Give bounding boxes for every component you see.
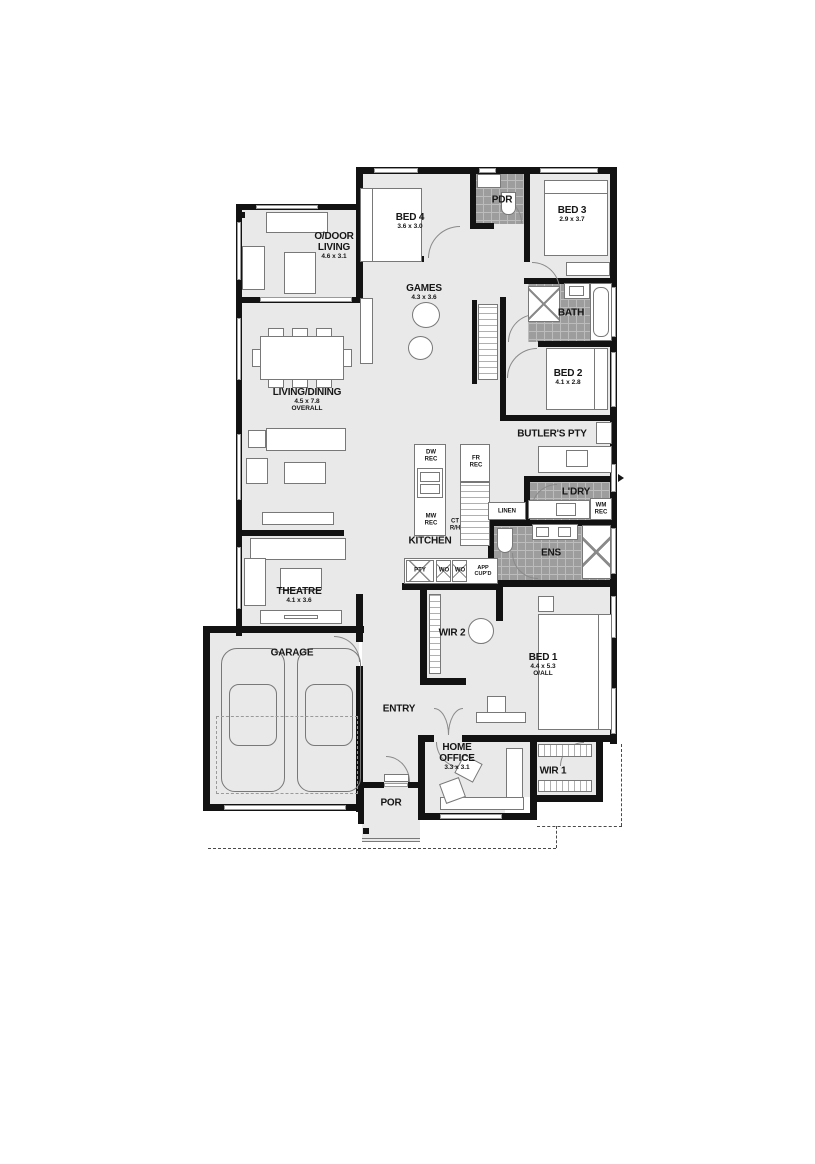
odoor-chair — [242, 246, 265, 290]
theatre-sofa-back — [250, 538, 346, 560]
butlers-name: BUTLER'S PTY — [517, 428, 586, 439]
living-window-2 — [237, 434, 241, 500]
theatre-name: THEATRE — [276, 586, 321, 597]
dining-chair — [316, 328, 332, 337]
dining-table — [260, 336, 344, 380]
bed3-pillow — [544, 180, 608, 194]
odoor-name-1: O/DOOR — [314, 231, 353, 242]
theatre-sofa-left — [244, 558, 266, 606]
bed4-name: BED 4 — [396, 212, 424, 223]
wir1-shelving-bottom — [538, 780, 592, 792]
wall-pdr-left — [470, 167, 476, 229]
pdr-label: PDR — [492, 194, 513, 205]
floor-plan-page: O/DOOR LIVING 4.6 x 3.1 BED 4 3.6 x 3.0 … — [0, 0, 815, 1164]
porch-edge — [362, 838, 420, 842]
wall-kitchen-bottom — [402, 583, 503, 590]
bed2-pillow — [594, 348, 608, 410]
wir1-name: WIR 1 — [540, 765, 567, 776]
wall-porch-left — [358, 782, 364, 824]
theatre-window — [237, 547, 241, 609]
fr-l1: FR — [470, 455, 483, 462]
bed1-side-table — [538, 596, 554, 612]
odoor-name-2: LIVING — [314, 242, 353, 253]
games-cabinet — [360, 298, 373, 364]
wall-porch-front-b — [408, 782, 418, 788]
wall-bed2-bottom — [500, 415, 617, 421]
ens-shower — [582, 525, 611, 579]
wall-ldry-top — [524, 476, 617, 482]
ens-label: ENS — [541, 547, 561, 558]
hall-robe — [478, 304, 498, 380]
fr-rec-label: FR REC — [470, 455, 483, 468]
wir1-label: WIR 1 — [540, 765, 567, 776]
ldry-name: L'DRY — [562, 486, 590, 497]
app-l2: CUP'D — [475, 571, 492, 577]
office-name-2: OFFICE — [439, 753, 474, 764]
bed4-window — [374, 168, 418, 173]
living-name: LIVING/DINING — [273, 387, 342, 398]
office-dims: 3.3 x 3.1 — [439, 765, 474, 772]
odoor-sofa — [266, 212, 328, 233]
wall-office-top-b — [462, 735, 530, 742]
entry-mirror — [487, 696, 506, 713]
butlers-sink — [566, 450, 588, 467]
living-label: LIVING/DINING 4.5 x 7.8 OVERALL — [273, 387, 342, 413]
garage-setback-dashed — [216, 716, 358, 794]
bath-tub-inner — [593, 287, 609, 337]
dining-chair — [292, 328, 308, 337]
bed4-dims: 3.6 x 3.0 — [396, 223, 424, 230]
bath-name: BATH — [558, 307, 584, 318]
kitchen-name: KITCHEN — [408, 535, 451, 546]
wall-wir1-right — [596, 742, 603, 802]
wall-bed1-bottom — [530, 735, 617, 742]
ldry-exit-arrow-icon — [618, 474, 624, 482]
boundary-connector — [556, 826, 557, 848]
living-console — [262, 512, 334, 525]
bed3-name: BED 3 — [558, 205, 586, 216]
bed1-label: BED 1 4.4 x 5.3 O/ALL — [529, 652, 557, 678]
ens-toilet — [497, 528, 513, 553]
living-dims-overall: OVERALL — [273, 406, 342, 413]
wall-theatre-top — [236, 530, 344, 536]
linen-name: LINEN — [498, 509, 516, 516]
dw-l1: DW — [425, 449, 438, 456]
living-coffee-table — [284, 462, 326, 484]
odoor-table — [284, 252, 316, 294]
odoor-dims: 4.6 x 3.1 — [314, 254, 353, 261]
mw-l2: REC — [425, 520, 438, 527]
floor-plan: O/DOOR LIVING 4.6 x 3.1 BED 4 3.6 x 3.0 … — [0, 0, 815, 1164]
floor-porch — [362, 786, 420, 842]
wo2-label: WO — [455, 568, 465, 575]
pdr-vanity — [477, 174, 501, 188]
bed1-pillow — [598, 614, 612, 730]
ens-name: ENS — [541, 547, 561, 558]
wall-hall-robe — [472, 300, 477, 384]
bed3-label: BED 3 2.9 x 3.7 — [558, 205, 586, 223]
wall-wir2-bottom — [420, 678, 466, 685]
boundary-right-bottom — [537, 826, 622, 827]
bath-basin — [569, 286, 584, 296]
games-label: GAMES 4.3 x 3.6 — [406, 283, 442, 301]
theatre-label: THEATRE 4.1 x 3.6 — [276, 586, 321, 604]
wo1-label: WO — [439, 568, 449, 575]
ens-basin — [558, 527, 571, 537]
pdr-name: PDR — [492, 194, 513, 205]
wall-porch-front-a — [362, 782, 384, 788]
garage-name: GARAGE — [271, 647, 314, 658]
ct-l2: R/H — [450, 525, 460, 532]
entry-name: ENTRY — [383, 703, 416, 714]
wall-hall-vertical — [500, 297, 506, 421]
living-armchair — [246, 458, 268, 484]
ct-rh-label: CT R/H — [450, 518, 460, 531]
wir2-name: WIR 2 — [439, 627, 466, 638]
wall-wir2-left — [420, 590, 427, 685]
wall-ens-bottom — [488, 580, 617, 587]
pdr-window — [479, 168, 496, 173]
dining-chair — [268, 328, 284, 337]
bed1-dims: 4.4 x 5.3 — [529, 663, 557, 670]
wir2-ottoman — [468, 618, 494, 644]
games-chair-1 — [412, 302, 440, 328]
wall-bath-bottom — [538, 341, 617, 347]
theatre-tv — [284, 615, 318, 619]
games-dims: 4.3 x 3.6 — [406, 294, 442, 301]
mw-rec-label: MW REC — [425, 513, 438, 526]
wm-l1: WM — [595, 502, 608, 509]
living-window-1 — [237, 318, 241, 380]
bed2-dims: 4.1 x 2.8 — [554, 379, 582, 386]
ct-l1: CT — [450, 518, 460, 525]
butlers-appliance — [596, 422, 612, 444]
bed3-robe — [566, 262, 610, 276]
wall-hall-stub — [496, 583, 503, 621]
games-chair-2 — [408, 336, 433, 360]
wall-garage-left — [203, 626, 210, 811]
pty-name: PTY — [414, 568, 426, 575]
front-door-step — [384, 774, 409, 782]
odoor-window-left — [237, 222, 241, 280]
kitchen-label: KITCHEN — [408, 535, 451, 546]
office-window — [440, 814, 502, 819]
wall-bed3-left — [524, 167, 530, 262]
linen-label: LINEN — [498, 509, 516, 516]
garage-door — [224, 805, 346, 810]
por-name: POR — [380, 797, 401, 808]
fr-l2: REC — [470, 462, 483, 469]
wir2-label: WIR 2 — [439, 627, 466, 638]
pty-label: PTY — [414, 568, 426, 575]
wall-office-left — [418, 735, 425, 820]
bath-shower — [528, 286, 560, 322]
kitchen-sink-bowl — [420, 484, 440, 494]
wall-pdr-bottom — [470, 223, 494, 229]
wir1-shelving-top — [538, 744, 592, 757]
theatre-dims: 4.1 x 3.6 — [276, 597, 321, 604]
games-name: GAMES — [406, 283, 442, 294]
wall-garage-top — [203, 626, 364, 633]
ens-window — [611, 528, 616, 574]
office-label: HOME OFFICE 3.3 x 3.1 — [439, 742, 474, 772]
living-side-table — [248, 430, 266, 448]
wm-rec-label: WM REC — [595, 502, 608, 515]
office-name-1: HOME — [439, 742, 474, 753]
wm-l2: REC — [595, 509, 608, 516]
boundary-right — [621, 744, 622, 826]
wo1-name: WO — [439, 568, 449, 575]
bed2-label: BED 2 4.1 x 2.8 — [554, 368, 582, 386]
odoor-label: O/DOOR LIVING 4.6 x 3.1 — [314, 231, 353, 261]
dining-chair — [252, 349, 261, 367]
dining-chair — [343, 349, 352, 367]
odoor-sliding-door — [260, 297, 352, 302]
kitchen-sink-bowl — [420, 472, 440, 482]
mw-l1: MW — [425, 513, 438, 520]
bed4-pillow — [360, 188, 373, 262]
ens-basin — [536, 527, 549, 537]
entry-label: ENTRY — [383, 703, 416, 714]
living-sofa — [266, 428, 346, 451]
entry-console-table — [476, 712, 526, 723]
bed2-name: BED 2 — [554, 368, 582, 379]
site-marker-2 — [363, 828, 369, 834]
wo2-name: WO — [455, 568, 465, 575]
ldry-trough — [556, 503, 576, 516]
bed2-window — [611, 352, 616, 407]
wall-garage-right-a — [356, 626, 363, 642]
bed3-window — [540, 168, 598, 173]
front-door-opening — [384, 783, 408, 787]
boundary-bottom — [208, 848, 556, 849]
site-marker-1 — [239, 212, 245, 218]
bed1-dims-overall: O/ALL — [529, 671, 557, 678]
wall-office-right — [530, 735, 537, 820]
butlers-label: BUTLER'S PTY — [517, 428, 586, 439]
living-dims: 4.5 x 7.8 — [273, 398, 342, 405]
garage-label: GARAGE — [271, 647, 314, 658]
bed3-dims: 2.9 x 3.7 — [558, 216, 586, 223]
app-cupd-label: APP CUP'D — [475, 565, 492, 577]
odoor-window-top — [256, 205, 318, 209]
wall-wir1-bottom — [530, 795, 603, 802]
kitchen-tall-pantry — [460, 482, 490, 546]
bath-label: BATH — [558, 307, 584, 318]
dw-l2: REC — [425, 456, 438, 463]
bed4-label: BED 4 3.6 x 3.0 — [396, 212, 424, 230]
por-label: POR — [380, 797, 401, 808]
bed1-name: BED 1 — [529, 652, 557, 663]
ldry-label: L'DRY — [562, 486, 590, 497]
dw-rec-label: DW REC — [425, 449, 438, 462]
